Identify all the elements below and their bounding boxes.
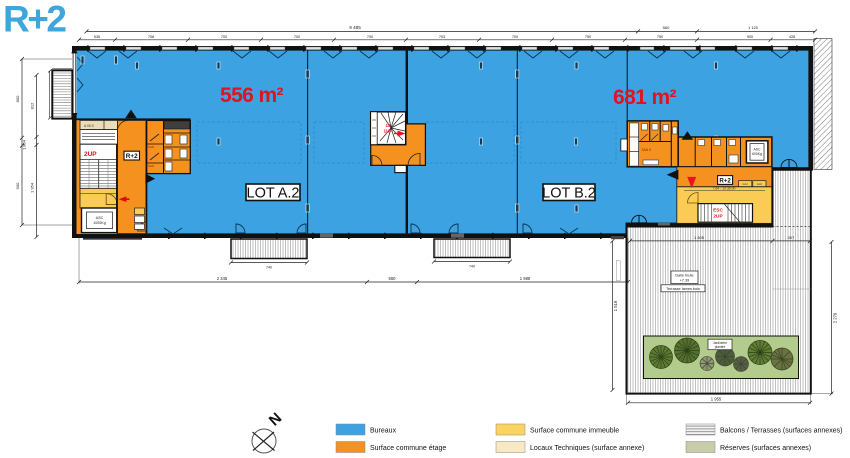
svg-text:1000Kg: 1000Kg xyxy=(93,221,105,225)
svg-text:750: 750 xyxy=(657,35,663,39)
svg-text:ASC: ASC xyxy=(754,148,762,152)
svg-text:plantée: plantée xyxy=(715,345,726,349)
svg-text:SAN H: SAN H xyxy=(642,148,652,152)
svg-text:2 345: 2 345 xyxy=(217,276,228,281)
svg-text:307: 307 xyxy=(788,235,795,240)
svg-text:700: 700 xyxy=(512,35,518,39)
svg-text:Terrasse lames bois: Terrasse lames bois xyxy=(666,287,700,291)
svg-text:9 485: 9 485 xyxy=(349,25,361,30)
svg-text:LOT B.2: LOT B.2 xyxy=(542,186,596,202)
svg-text:1 519: 1 519 xyxy=(613,300,618,311)
svg-text:900: 900 xyxy=(747,35,753,39)
svg-text:703: 703 xyxy=(439,35,445,39)
svg-text:1 864: 1 864 xyxy=(22,139,27,150)
svg-text:700: 700 xyxy=(221,35,227,39)
svg-text:Réserves (surfaces annexes): Réserves (surfaces annexes) xyxy=(720,445,811,452)
svg-text:+7.39: +7.39 xyxy=(680,279,690,283)
svg-text:700: 700 xyxy=(294,35,300,39)
svg-text:1UP: 1UP xyxy=(384,129,393,134)
svg-text:600Kg: 600Kg xyxy=(752,152,762,156)
svg-text:812: 812 xyxy=(30,102,35,109)
svg-text:1 120: 1 120 xyxy=(748,25,759,30)
svg-text:Surface commune immeuble: Surface commune immeuble xyxy=(530,428,619,435)
svg-text:SAN: SAN xyxy=(148,164,154,168)
svg-text:A 00.0: A 00.0 xyxy=(84,124,94,128)
svg-text:900: 900 xyxy=(15,182,20,189)
svg-text:SAN: SAN xyxy=(148,145,154,149)
svg-text:Bureaux: Bureaux xyxy=(370,428,397,435)
svg-text:535: 535 xyxy=(94,35,100,39)
svg-text:750: 750 xyxy=(585,35,591,39)
svg-text:800: 800 xyxy=(15,95,20,102)
svg-text:GAI: GAI xyxy=(742,182,747,186)
svg-text:2 279: 2 279 xyxy=(833,312,838,323)
svg-text:Surface commune étage: Surface commune étage xyxy=(370,445,446,452)
svg-text:GAI: GAI xyxy=(757,182,762,186)
svg-text:1 954: 1 954 xyxy=(30,182,35,193)
svg-text:ESC: ESC xyxy=(713,208,723,214)
svg-text:560: 560 xyxy=(389,276,397,281)
svg-text:1 988: 1 988 xyxy=(520,276,531,281)
svg-text:Locaux Techniques (surface ann: Locaux Techniques (surface annexe) xyxy=(530,445,644,452)
svg-text:700: 700 xyxy=(367,35,373,39)
svg-text:R+2: R+2 xyxy=(3,0,66,40)
svg-text:Dalle brute: Dalle brute xyxy=(675,274,693,278)
svg-text:R+2: R+2 xyxy=(126,153,138,160)
svg-text:428: 428 xyxy=(789,35,795,39)
svg-text:ASC: ASC xyxy=(96,216,104,220)
svg-text:681 m²: 681 m² xyxy=(613,86,677,109)
svg-text:560: 560 xyxy=(663,25,670,30)
svg-text:15: 15 xyxy=(385,123,391,128)
svg-text:7.64 - 10.36.00: 7.64 - 10.36.00 xyxy=(713,186,736,190)
svg-text:2UP: 2UP xyxy=(84,151,97,158)
svg-text:LOT A.2: LOT A.2 xyxy=(247,186,300,202)
svg-text:1 955: 1 955 xyxy=(711,397,722,402)
svg-text:740: 740 xyxy=(266,266,272,270)
svg-text:556 m²: 556 m² xyxy=(220,84,284,107)
svg-text:740: 740 xyxy=(469,265,475,269)
svg-text:2UP: 2UP xyxy=(713,214,723,220)
svg-text:708: 708 xyxy=(148,35,154,39)
svg-text:1 405: 1 405 xyxy=(694,235,705,240)
svg-text:R+2: R+2 xyxy=(719,178,731,185)
svg-text:Balcons / Terrasses (surfaces: Balcons / Terrasses (surfaces annexes) xyxy=(720,428,842,435)
